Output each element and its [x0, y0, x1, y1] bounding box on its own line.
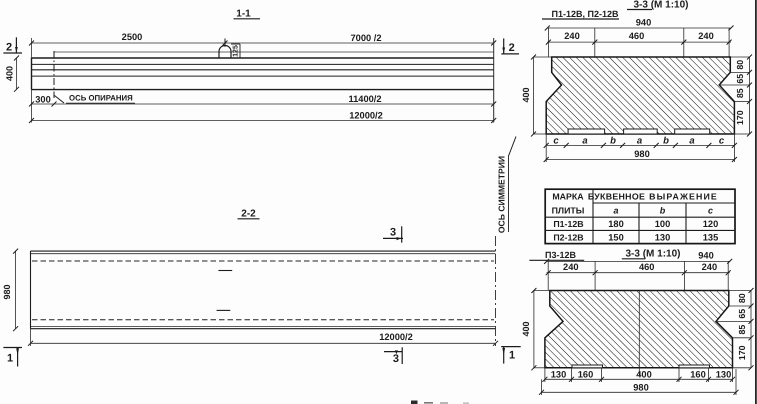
svg-text:ОСЬ ОПИРАНИЯ: ОСЬ ОПИРАНИЯ [69, 93, 133, 102]
svg-text:2-2: 2-2 [241, 209, 256, 220]
svg-text:980: 980 [634, 149, 650, 159]
svg-text:П3-12В: П3-12В [545, 250, 576, 260]
svg-text:a: a [582, 136, 587, 147]
svg-text:400: 400 [521, 321, 531, 336]
svg-text:65: 65 [737, 309, 747, 319]
svg-text:150: 150 [608, 233, 624, 243]
svg-text:400: 400 [5, 66, 15, 81]
svg-text:a: a [637, 136, 642, 147]
svg-text:130: 130 [655, 233, 671, 243]
svg-text:ВЫРАЖЕНИЕ: ВЫРАЖЕНИЕ [649, 192, 718, 202]
svg-text:85: 85 [735, 88, 745, 98]
svg-text:2: 2 [509, 42, 515, 54]
svg-text:170: 170 [737, 345, 747, 360]
svg-text:3: 3 [393, 353, 399, 365]
svg-text:П2-12В: П2-12В [553, 233, 583, 243]
svg-text:b: b [663, 136, 669, 147]
svg-text:3-3 (М 1:10): 3-3 (М 1:10) [625, 249, 680, 260]
svg-text:460: 460 [629, 31, 645, 41]
svg-text:125: 125 [233, 45, 240, 57]
svg-text:980: 980 [633, 382, 649, 392]
svg-text:П1-12В: П1-12В [553, 219, 583, 229]
svg-text:240: 240 [564, 31, 580, 41]
svg-text:c: c [553, 136, 559, 147]
svg-text:80: 80 [737, 293, 747, 303]
svg-text:2: 2 [6, 42, 12, 54]
svg-text:ПЛИТЫ: ПЛИТЫ [552, 206, 585, 216]
svg-text:300: 300 [35, 94, 51, 104]
svg-text:1: 1 [509, 350, 515, 362]
svg-text:a: a [689, 136, 694, 147]
svg-text:80: 80 [735, 60, 745, 70]
svg-text:130: 130 [551, 369, 567, 379]
svg-text:П1-12В, П2-12В: П1-12В, П2-12В [552, 9, 619, 19]
svg-text:ОСЬ СИММЕТРИИ: ОСЬ СИММЕТРИИ [497, 156, 507, 233]
svg-text:3: 3 [390, 226, 396, 238]
svg-text:85: 85 [737, 325, 747, 335]
svg-text:100: 100 [655, 219, 671, 229]
svg-text:c: c [708, 206, 713, 216]
svg-text:160: 160 [690, 369, 706, 379]
svg-text:1-1: 1-1 [236, 9, 251, 20]
svg-text:980: 980 [2, 284, 12, 299]
svg-text:460: 460 [639, 262, 655, 272]
svg-text:12000/2: 12000/2 [379, 332, 413, 342]
svg-text:МАРКА: МАРКА [552, 192, 584, 202]
svg-text:940: 940 [636, 18, 652, 28]
svg-text:c: c [719, 136, 725, 147]
svg-text:400: 400 [636, 369, 652, 379]
svg-text:12000/2: 12000/2 [349, 111, 383, 121]
svg-text:240: 240 [563, 262, 579, 272]
svg-text:240: 240 [702, 262, 718, 272]
svg-text:a: a [613, 206, 618, 216]
svg-text:135: 135 [703, 233, 719, 243]
svg-text:b: b [660, 206, 666, 216]
svg-text:180: 180 [608, 219, 624, 229]
svg-text:240: 240 [698, 31, 714, 41]
svg-text:400: 400 [521, 87, 531, 102]
svg-text:130: 130 [716, 369, 732, 379]
svg-text:65: 65 [735, 74, 745, 84]
svg-text:940: 940 [698, 251, 714, 261]
svg-text:7000 /2: 7000 /2 [350, 33, 381, 43]
svg-text:1: 1 [7, 353, 13, 365]
svg-text:170: 170 [735, 110, 745, 125]
svg-text:b: b [610, 136, 616, 147]
svg-text:120: 120 [703, 219, 719, 229]
svg-text:БУКВЕННОЕ: БУКВЕННОЕ [588, 192, 645, 202]
svg-text:160: 160 [578, 369, 594, 379]
svg-text:2500: 2500 [122, 32, 143, 42]
svg-text:11400/2: 11400/2 [348, 94, 381, 104]
